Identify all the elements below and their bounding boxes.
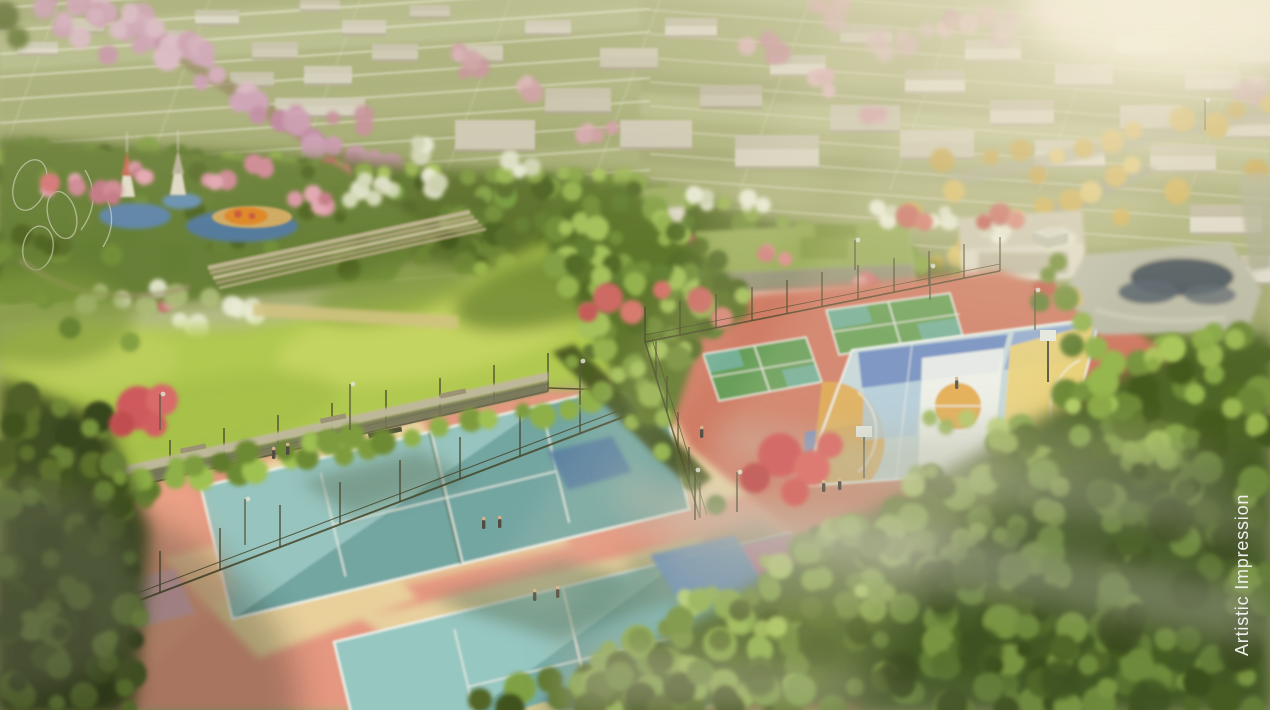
svg-text:Artistic Impression: Artistic Impression bbox=[1232, 494, 1252, 656]
